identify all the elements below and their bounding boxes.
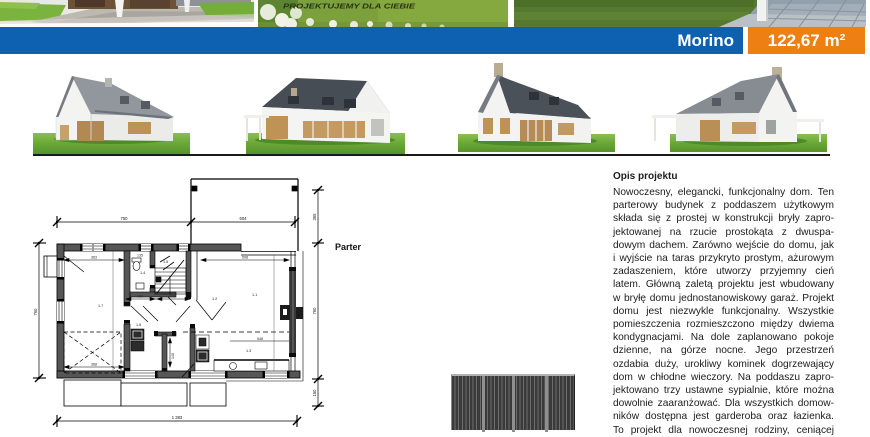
svg-text:Parter: Parter — [335, 242, 362, 252]
svg-text:1 383: 1 383 — [172, 415, 183, 420]
svg-text:548: 548 — [257, 337, 263, 341]
svg-text:180: 180 — [137, 295, 143, 299]
svg-text:604: 604 — [240, 216, 248, 221]
svg-text:760: 760 — [312, 307, 317, 315]
svg-text:1.1: 1.1 — [252, 293, 257, 297]
svg-text:135: 135 — [137, 254, 143, 258]
svg-text:368: 368 — [91, 363, 97, 367]
svg-text:1.5: 1.5 — [163, 260, 168, 264]
svg-text:365: 365 — [312, 213, 317, 221]
svg-text:140: 140 — [171, 353, 175, 359]
svg-text:150: 150 — [312, 389, 317, 397]
svg-text:1.6: 1.6 — [136, 323, 141, 327]
svg-text:1.4: 1.4 — [140, 271, 145, 275]
svg-text:750: 750 — [121, 216, 129, 221]
svg-text:275: 275 — [169, 295, 175, 299]
svg-text:1.3: 1.3 — [246, 349, 251, 353]
svg-text:760: 760 — [33, 308, 38, 316]
svg-text:1.7: 1.7 — [98, 304, 103, 308]
svg-text:363: 363 — [91, 256, 97, 260]
svg-text:508: 508 — [242, 256, 248, 260]
svg-text:1.2: 1.2 — [212, 297, 217, 301]
